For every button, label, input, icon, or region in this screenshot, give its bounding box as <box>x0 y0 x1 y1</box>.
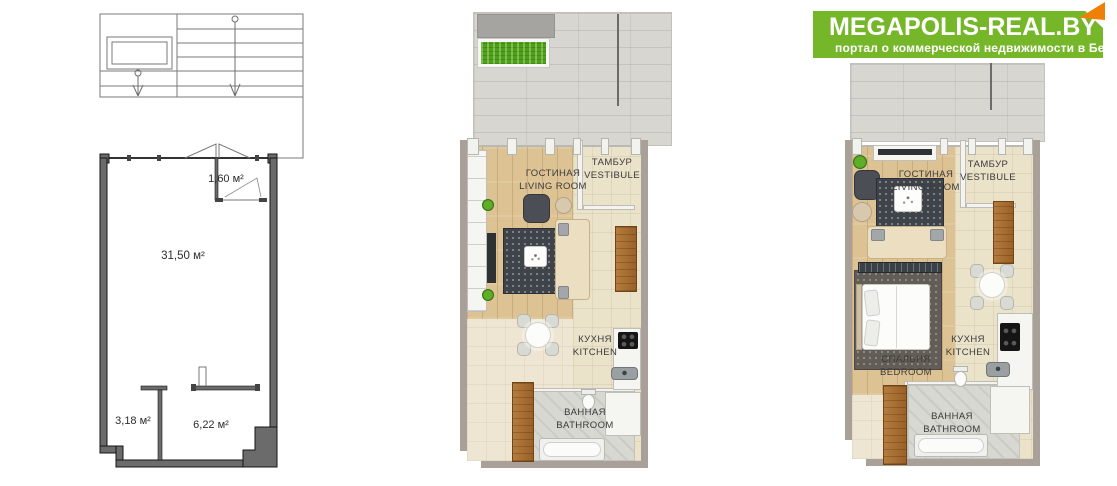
sofa-cushion <box>558 286 569 299</box>
label-bedroom-en: BEDROOM <box>861 366 951 379</box>
label-vestibule-ru: ТАМБУР <box>953 158 1023 171</box>
label-vestibule: ТАМБУР VESTIBULE <box>953 158 1023 184</box>
wall-right <box>641 140 648 432</box>
shelving-unit <box>467 150 487 312</box>
area-label-hall: 6,22 м² <box>193 419 229 431</box>
window-pillar <box>573 138 581 155</box>
label-kitchen-en: KITCHEN <box>933 346 1003 359</box>
bathtub <box>539 438 605 461</box>
roof-band <box>477 14 555 38</box>
wardrobe <box>512 382 534 462</box>
window-pillar <box>507 138 517 155</box>
round-chair <box>852 202 872 222</box>
grass-planter <box>477 38 550 68</box>
entry-door-pillar <box>998 138 1006 155</box>
window-pillar <box>467 138 479 155</box>
window-pillar <box>852 138 862 155</box>
label-bathroom-ru: ВАННАЯ <box>917 410 987 423</box>
tv-panel <box>487 233 496 283</box>
shower-area <box>990 386 1030 434</box>
terrace <box>850 63 1045 142</box>
side-table <box>555 197 572 214</box>
bottom-partition-walls <box>141 367 260 460</box>
window-pillar <box>940 138 948 155</box>
dining-table <box>525 322 551 348</box>
label-vestibule-ru: ТАМБУР <box>577 156 647 169</box>
kitchen-sink <box>611 367 638 380</box>
bathtub-inner <box>543 442 601 457</box>
grass <box>481 42 546 64</box>
label-kitchen: КУХНЯ KITCHEN <box>933 333 1003 359</box>
bed-pillow <box>863 289 880 317</box>
low-console <box>858 262 942 273</box>
technical-plan: 1,60 м² 31,50 м² 3,18 м² 6,22 м² <box>95 12 310 470</box>
dining-chair <box>1000 296 1014 310</box>
label-vestibule-en: VESTIBULE <box>577 169 647 182</box>
label-kitchen-ru: КУХНЯ <box>933 333 1003 346</box>
label-bathroom-en: BATHROOM <box>550 419 620 432</box>
tv-panel <box>878 149 932 155</box>
dining-table <box>979 272 1005 298</box>
sofa-cushion <box>930 229 944 241</box>
megapolis-logo-banner: MEGAPOLIS-REAL.BY портал о коммерческой … <box>813 11 1103 58</box>
bathtub-inner <box>918 438 984 453</box>
plant <box>482 289 494 301</box>
coffee-table <box>524 246 547 267</box>
window-pillar <box>1023 138 1033 155</box>
plant <box>482 199 494 211</box>
duvet-fold <box>896 286 897 348</box>
label-bathroom: ВАННАЯ BATHROOM <box>550 406 620 432</box>
label-bathroom: ВАННАЯ BATHROOM <box>917 410 987 436</box>
logo-subtitle: портал о коммерческой недвижимости в Бел… <box>813 41 1103 55</box>
staircase-block <box>100 14 303 97</box>
sofa-cushion <box>558 223 569 236</box>
bathtub <box>914 434 988 457</box>
area-label-bathroom: 3,18 м² <box>115 415 151 427</box>
plant <box>853 155 867 169</box>
window-pillar <box>631 138 641 155</box>
wardrobe <box>883 385 907 465</box>
sideboard <box>615 226 637 292</box>
label-kitchen-en: KITCHEN <box>560 346 630 359</box>
vestibule-wall-bottom <box>583 205 635 210</box>
drain-pipe <box>990 63 992 110</box>
bedroom-rendered-plan: ГОСТИНАЯ LIVING ROOM ТАМБУР VESTIBULE СП… <box>840 8 1072 478</box>
studio-rendered-plan: ГОСТИНАЯ LIVING ROOM ТАМБУР VESTIBULE КУ… <box>455 10 687 482</box>
label-bathroom-ru: ВАННАЯ <box>550 406 620 419</box>
area-label-main-room: 31,50 м² <box>161 250 205 262</box>
wall-right <box>1033 140 1040 428</box>
cooktop <box>1000 323 1020 351</box>
wall-left <box>460 140 467 451</box>
entry-door-pillar <box>601 138 609 155</box>
label-vestibule-en: VESTIBULE <box>953 171 1023 184</box>
drain-pipe <box>617 14 619 106</box>
label-kitchen-ru: КУХНЯ <box>560 333 630 346</box>
hall-cabinet <box>993 201 1014 264</box>
sofa-cushion <box>871 229 885 241</box>
stair-direction-arrows <box>133 16 240 96</box>
kitchen-sink <box>986 362 1010 377</box>
label-kitchen: КУХНЯ KITCHEN <box>560 333 630 359</box>
wall-left <box>845 140 852 440</box>
armchair <box>523 194 550 223</box>
dining-chair <box>970 296 984 310</box>
window-pillar <box>968 138 976 155</box>
area-label-vestibule: 1,60 м² <box>208 173 244 185</box>
technical-plan-drawing: 1,60 м² 31,50 м² 3,18 м² 6,22 м² <box>95 12 310 470</box>
label-vestibule: ТАМБУР VESTIBULE <box>577 156 647 182</box>
floor-plans-image: 1,60 м² 31,50 м² 3,18 м² 6,22 м² <box>0 0 1117 486</box>
door-frame-symbol <box>199 367 206 386</box>
logo-title: MEGAPOLIS-REAL.BY <box>813 11 1103 41</box>
window-pillar <box>545 138 555 155</box>
building-outline <box>277 97 303 158</box>
label-bathroom-en: BATHROOM <box>917 423 987 436</box>
